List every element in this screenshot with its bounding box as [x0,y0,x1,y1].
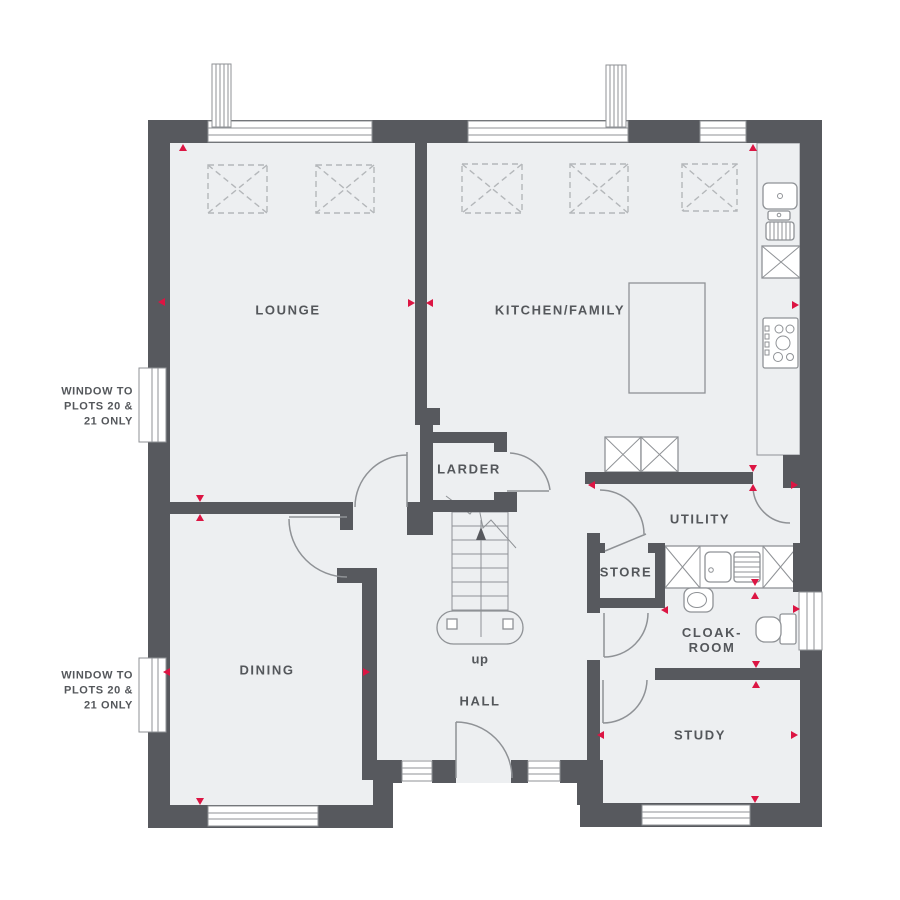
window [208,121,372,142]
chimney-icon [606,65,626,127]
window [139,368,166,442]
kitchen-island [629,283,705,393]
appliance-icon [605,437,641,472]
study-label: STUDY [674,728,726,743]
window [402,761,432,781]
kitchen-label: KITCHEN/FAMILY [495,303,625,318]
window [642,805,750,825]
wc-icon [756,614,796,644]
window-note-upper: WINDOW TO PLOTS 20 & 21 ONLY [0,385,133,430]
window [139,658,166,732]
cloakroom-label: CLOAK- ROOM [682,625,742,655]
lounge-label: LOUNGE [255,303,320,318]
hob-icon [763,318,798,368]
appliance-icon [762,246,800,278]
dining-label: DINING [239,663,294,678]
window [208,806,318,826]
chimney-icons [212,64,626,127]
kitchen-base-units [605,437,678,472]
larder-label: LARDER [437,462,501,477]
window-note-lower: WINDOW TO PLOTS 20 & 21 ONLY [0,669,133,714]
wash-basin-icon [684,588,713,612]
hall-label: HALL [459,694,500,709]
window [468,121,628,142]
window [799,592,822,650]
utility-label: UTILITY [670,512,730,527]
stairs-up-label: up [472,652,489,667]
store-label: STORE [600,565,653,580]
floor-plan: LOUNGE KITCHEN/FAMILY LARDER UTILITY STO… [0,0,900,900]
appliance-icon [641,437,678,472]
window [700,121,746,142]
chimney-icon [212,64,231,127]
window [528,761,560,781]
utility-counter [665,546,798,588]
floor-plan-drawing [0,0,900,900]
